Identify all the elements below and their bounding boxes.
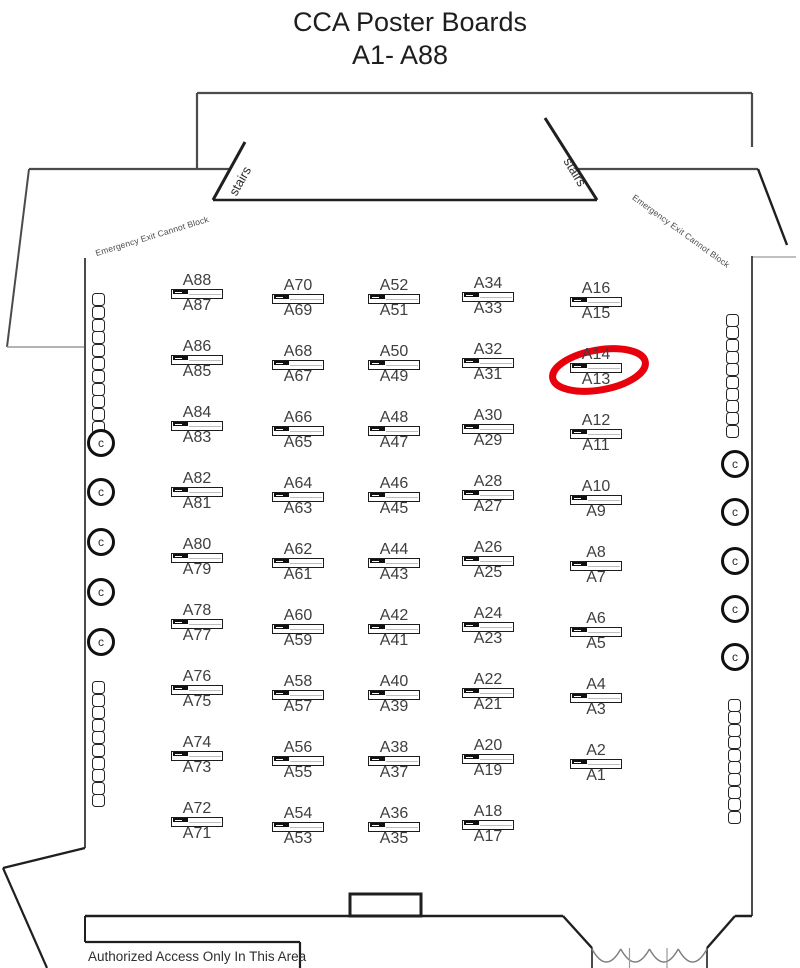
poster-board-pair: A80A79 (165, 537, 229, 577)
chair-icon (92, 794, 105, 807)
board-chip-icon (274, 559, 289, 563)
board-chip-icon (572, 694, 587, 698)
chair-icon (728, 736, 741, 749)
poster-board-icon (171, 817, 223, 827)
board-underline (290, 431, 322, 432)
board-chip-icon (370, 361, 385, 365)
board-label-top: A76 (165, 669, 229, 684)
chair-icon (92, 331, 105, 344)
board-underline (290, 299, 322, 300)
poster-board-pair: A30A29 (456, 408, 520, 448)
poster-board-icon (368, 756, 420, 766)
poster-board-pair: A6A5 (564, 611, 628, 651)
board-underline (480, 429, 512, 430)
board-underline (386, 563, 418, 564)
board-label-bottom: A27 (456, 499, 520, 514)
board-chip-dash (466, 295, 473, 296)
chair-icon (728, 749, 741, 762)
board-chip-icon (274, 427, 289, 431)
podium-rect (350, 894, 421, 916)
door-arcs (592, 949, 707, 962)
board-label-top: A42 (362, 608, 426, 623)
column-circle-icon: c (721, 595, 749, 623)
wall-segment (7, 169, 29, 347)
board-chip-dash (574, 498, 581, 499)
board-chip-dash (276, 825, 283, 826)
board-underline (386, 365, 418, 366)
poster-board-icon (570, 759, 622, 769)
board-label-bottom: A61 (266, 567, 330, 582)
poster-board-icon (272, 624, 324, 634)
board-label-bottom: A45 (362, 501, 426, 516)
board-chip-dash (372, 627, 379, 628)
poster-board-pair: A54A53 (266, 806, 330, 846)
board-chip-dash (276, 363, 283, 364)
board-label-bottom: A59 (266, 633, 330, 648)
board-chip-dash (175, 820, 182, 821)
board-underline (386, 761, 418, 762)
poster-board-icon (368, 624, 420, 634)
chair-icon (728, 786, 741, 799)
board-label-bottom: A13 (564, 372, 628, 387)
poster-board-pair: A86A85 (165, 339, 229, 379)
poster-board-pair: A70A69 (266, 278, 330, 318)
poster-board-icon (171, 421, 223, 431)
wall-segment (563, 916, 592, 948)
poster-board-icon (570, 561, 622, 571)
chair-icon (728, 699, 741, 712)
chair-icon (92, 719, 105, 732)
board-chip-dash (276, 429, 283, 430)
poster-board-icon (272, 690, 324, 700)
poster-board-pair: A12A11 (564, 413, 628, 453)
poster-board-pair: A44A43 (362, 542, 426, 582)
board-label-bottom: A47 (362, 435, 426, 450)
board-chip-icon (464, 425, 479, 429)
board-chip-icon (173, 818, 188, 822)
board-chip-dash (466, 691, 473, 692)
board-chip-dash (372, 693, 379, 694)
board-underline (386, 431, 418, 432)
board-chip-dash (466, 559, 473, 560)
board-chip-icon (274, 691, 289, 695)
poster-board-icon (462, 424, 514, 434)
board-label-bottom: A51 (362, 303, 426, 318)
poster-board-pair: A84A83 (165, 405, 229, 445)
board-label-bottom: A7 (564, 570, 628, 585)
board-label-top: A18 (456, 804, 520, 819)
board-underline (290, 827, 322, 828)
board-label-bottom: A3 (564, 702, 628, 717)
board-label-bottom: A19 (456, 763, 520, 778)
chair-icon (728, 724, 741, 737)
board-label-bottom: A55 (266, 765, 330, 780)
poster-board-icon (368, 360, 420, 370)
board-label-top: A34 (456, 276, 520, 291)
poster-board-pair: A36A35 (362, 806, 426, 846)
board-label-top: A8 (564, 545, 628, 560)
board-chip-icon (370, 427, 385, 431)
board-label-top: A30 (456, 408, 520, 423)
chair-icon (92, 681, 105, 694)
poster-board-pair: A76A75 (165, 669, 229, 709)
poster-board-pair: A22A21 (456, 672, 520, 712)
board-label-bottom: A79 (165, 562, 229, 577)
board-chip-dash (574, 300, 581, 301)
poster-board-pair: A26A25 (456, 540, 520, 580)
board-underline (290, 761, 322, 762)
poster-board-icon (171, 487, 223, 497)
board-chip-icon (464, 755, 479, 759)
poster-board-icon (570, 363, 622, 373)
board-label-top: A16 (564, 281, 628, 296)
board-label-bottom: A63 (266, 501, 330, 516)
board-chip-dash (574, 432, 581, 433)
board-chip-dash (574, 696, 581, 697)
board-label-bottom: A57 (266, 699, 330, 714)
board-chip-dash (372, 429, 379, 430)
poster-board-pair: A40A39 (362, 674, 426, 714)
board-label-bottom: A31 (456, 367, 520, 382)
board-label-bottom: A35 (362, 831, 426, 846)
board-chip-icon (274, 625, 289, 629)
board-chip-dash (574, 366, 581, 367)
poster-board-pair: A28A27 (456, 474, 520, 514)
board-chip-icon (572, 628, 587, 632)
poster-board-pair: A18A17 (456, 804, 520, 844)
board-label-bottom: A87 (165, 298, 229, 313)
board-chip-icon (173, 290, 188, 294)
poster-board-pair: A46A45 (362, 476, 426, 516)
poster-board-pair: A34A33 (456, 276, 520, 316)
board-label-top: A70 (266, 278, 330, 293)
chair-icon (92, 744, 105, 757)
chair-icon (728, 798, 741, 811)
poster-board-icon (171, 289, 223, 299)
board-chip-icon (572, 430, 587, 434)
board-underline (189, 426, 221, 427)
board-label-top: A64 (266, 476, 330, 491)
board-label-top: A48 (362, 410, 426, 425)
board-chip-dash (466, 823, 473, 824)
board-chip-icon (464, 623, 479, 627)
poster-board-icon (368, 690, 420, 700)
board-underline (480, 759, 512, 760)
board-chip-icon (464, 491, 479, 495)
board-chip-dash (372, 363, 379, 364)
board-chip-dash (276, 561, 283, 562)
chair-icon (726, 376, 739, 389)
board-label-bottom: A17 (456, 829, 520, 844)
board-label-top: A24 (456, 606, 520, 621)
column-circle-icon: c (87, 478, 115, 506)
board-label-top: A28 (456, 474, 520, 489)
board-underline (588, 566, 620, 567)
poster-board-icon (570, 495, 622, 505)
board-underline (588, 302, 620, 303)
poster-board-icon (570, 429, 622, 439)
chair-icon (92, 383, 105, 396)
board-label-top: A88 (165, 273, 229, 288)
board-label-top: A10 (564, 479, 628, 494)
chair-icon (728, 711, 741, 724)
board-underline (480, 693, 512, 694)
board-label-bottom: A15 (564, 306, 628, 321)
board-label-top: A74 (165, 735, 229, 750)
board-label-bottom: A69 (266, 303, 330, 318)
poster-board-icon (272, 426, 324, 436)
poster-board-pair: A48A47 (362, 410, 426, 450)
poster-board-icon (272, 822, 324, 832)
wall-segment (3, 868, 47, 968)
board-label-top: A54 (266, 806, 330, 821)
board-underline (480, 297, 512, 298)
poster-board-icon (272, 756, 324, 766)
poster-board-pair: A58A57 (266, 674, 330, 714)
board-underline (189, 822, 221, 823)
board-chip-icon (370, 691, 385, 695)
board-label-top: A4 (564, 677, 628, 692)
board-chip-icon (370, 559, 385, 563)
wall-segment (3, 848, 85, 868)
board-label-bottom: A25 (456, 565, 520, 580)
board-underline (588, 764, 620, 765)
poster-board-icon (462, 622, 514, 632)
board-chip-icon (370, 757, 385, 761)
board-underline (588, 698, 620, 699)
chair-icon (92, 408, 105, 421)
board-underline (480, 363, 512, 364)
board-label-top: A12 (564, 413, 628, 428)
chair-icon (726, 425, 739, 438)
board-underline (588, 368, 620, 369)
board-label-bottom: A77 (165, 628, 229, 643)
board-chip-dash (175, 490, 182, 491)
board-chip-icon (572, 562, 587, 566)
poster-board-pair: A14A13 (564, 347, 628, 387)
board-underline (189, 360, 221, 361)
poster-board-icon (462, 358, 514, 368)
board-label-top: A44 (362, 542, 426, 557)
title-line-2: A1- A88 (0, 39, 800, 72)
board-label-top: A82 (165, 471, 229, 486)
board-chip-icon (173, 356, 188, 360)
board-underline (480, 825, 512, 826)
board-chip-icon (370, 493, 385, 497)
poster-board-pair: A60A59 (266, 608, 330, 648)
board-chip-icon (274, 361, 289, 365)
poster-board-icon (368, 822, 420, 832)
poster-board-pair: A8A7 (564, 545, 628, 585)
poster-board-pair: A42A41 (362, 608, 426, 648)
board-chip-icon (464, 821, 479, 825)
poster-board-icon (570, 627, 622, 637)
board-label-bottom: A81 (165, 496, 229, 511)
board-label-top: A26 (456, 540, 520, 555)
board-chip-icon (370, 823, 385, 827)
board-label-top: A22 (456, 672, 520, 687)
wall-segment (758, 169, 787, 245)
board-label-top: A36 (362, 806, 426, 821)
board-chip-icon (572, 760, 587, 764)
board-chip-icon (464, 293, 479, 297)
board-label-top: A20 (456, 738, 520, 753)
poster-board-icon (570, 693, 622, 703)
board-label-top: A2 (564, 743, 628, 758)
poster-board-pair: A2A1 (564, 743, 628, 783)
poster-board-pair: A72A71 (165, 801, 229, 841)
board-chip-dash (574, 762, 581, 763)
board-label-bottom: A41 (362, 633, 426, 648)
board-label-top: A46 (362, 476, 426, 491)
board-underline (480, 627, 512, 628)
chair-icon (92, 694, 105, 707)
poster-board-icon (462, 820, 514, 830)
authorized-access-label: Authorized Access Only In This Area (88, 949, 306, 964)
board-underline (290, 365, 322, 366)
board-underline (588, 632, 620, 633)
board-label-top: A6 (564, 611, 628, 626)
board-label-top: A68 (266, 344, 330, 359)
column-circle-icon: c (721, 498, 749, 526)
board-label-bottom: A65 (266, 435, 330, 450)
board-underline (480, 561, 512, 562)
board-label-bottom: A9 (564, 504, 628, 519)
board-chip-icon (274, 295, 289, 299)
board-chip-dash (175, 292, 182, 293)
chair-icon (92, 706, 105, 719)
board-underline (386, 827, 418, 828)
board-chip-icon (274, 823, 289, 827)
board-label-top: A84 (165, 405, 229, 420)
board-chip-icon (173, 488, 188, 492)
board-label-bottom: A67 (266, 369, 330, 384)
chair-icon (728, 811, 741, 824)
board-label-bottom: A11 (564, 438, 628, 453)
board-chip-icon (274, 757, 289, 761)
poster-board-icon (462, 490, 514, 500)
poster-board-icon (368, 294, 420, 304)
poster-board-icon (272, 492, 324, 502)
chair-icon (92, 395, 105, 408)
board-chip-dash (372, 561, 379, 562)
poster-board-icon (272, 360, 324, 370)
poster-board-icon (462, 754, 514, 764)
poster-board-icon (368, 492, 420, 502)
chair-icon (92, 769, 105, 782)
wall-segment (707, 916, 735, 948)
poster-board-pair: A50A49 (362, 344, 426, 384)
board-chip-icon (572, 364, 587, 368)
board-label-top: A62 (266, 542, 330, 557)
poster-board-pair: A64A63 (266, 476, 330, 516)
board-label-top: A50 (362, 344, 426, 359)
board-underline (386, 695, 418, 696)
board-underline (290, 563, 322, 564)
board-chip-icon (274, 493, 289, 497)
chair-icon (728, 773, 741, 786)
board-chip-icon (370, 295, 385, 299)
board-chip-dash (466, 493, 473, 494)
board-label-bottom: A71 (165, 826, 229, 841)
column-circle-icon: c (721, 643, 749, 671)
column-circle-icon: c (721, 450, 749, 478)
chair-icon (726, 339, 739, 352)
title-line-1: CCA Poster Boards (10, 6, 800, 39)
board-underline (386, 629, 418, 630)
poster-board-pair: A16A15 (564, 281, 628, 321)
board-label-bottom: A53 (266, 831, 330, 846)
chair-icon (92, 370, 105, 383)
chair-icon (726, 412, 739, 425)
chair-icon (726, 400, 739, 413)
board-chip-icon (370, 625, 385, 629)
board-underline (480, 495, 512, 496)
board-chip-dash (466, 757, 473, 758)
column-circle-icon: c (721, 547, 749, 575)
page-title: CCA Poster Boards A1- A88 (0, 6, 800, 72)
poster-board-icon (171, 685, 223, 695)
board-underline (386, 299, 418, 300)
chair-icon (726, 326, 739, 339)
poster-board-icon (171, 553, 223, 563)
chair-icon (92, 319, 105, 332)
board-chip-dash (372, 825, 379, 826)
board-label-top: A52 (362, 278, 426, 293)
board-chip-icon (173, 752, 188, 756)
board-label-top: A86 (165, 339, 229, 354)
board-chip-dash (466, 427, 473, 428)
board-label-top: A66 (266, 410, 330, 425)
poster-board-pair: A82A81 (165, 471, 229, 511)
floor-plan-canvas: CCA Poster Boards A1- A88 stairs stairs … (0, 0, 800, 968)
board-chip-dash (175, 688, 182, 689)
poster-board-icon (171, 751, 223, 761)
board-label-bottom: A23 (456, 631, 520, 646)
board-label-bottom: A29 (456, 433, 520, 448)
board-chip-icon (173, 554, 188, 558)
poster-board-pair: A4A3 (564, 677, 628, 717)
board-chip-dash (175, 556, 182, 557)
poster-board-pair: A10A9 (564, 479, 628, 519)
chair-icon (726, 363, 739, 376)
board-chip-icon (173, 620, 188, 624)
board-chip-dash (276, 627, 283, 628)
board-label-top: A40 (362, 674, 426, 689)
board-label-bottom: A1 (564, 768, 628, 783)
poster-board-pair: A56A55 (266, 740, 330, 780)
board-chip-dash (175, 622, 182, 623)
board-label-top: A60 (266, 608, 330, 623)
poster-board-pair: A78A77 (165, 603, 229, 643)
poster-board-pair: A68A67 (266, 344, 330, 384)
board-underline (189, 294, 221, 295)
poster-board-pair: A24A23 (456, 606, 520, 646)
board-underline (189, 756, 221, 757)
board-chip-icon (464, 557, 479, 561)
poster-board-icon (272, 294, 324, 304)
column-circle-icon: c (87, 528, 115, 556)
board-chip-icon (464, 359, 479, 363)
chair-icon (728, 761, 741, 774)
column-circle-icon: c (87, 429, 115, 457)
board-chip-icon (173, 422, 188, 426)
poster-board-icon (171, 619, 223, 629)
board-label-top: A80 (165, 537, 229, 552)
board-chip-dash (466, 625, 473, 626)
board-label-bottom: A73 (165, 760, 229, 775)
chair-icon (92, 344, 105, 357)
